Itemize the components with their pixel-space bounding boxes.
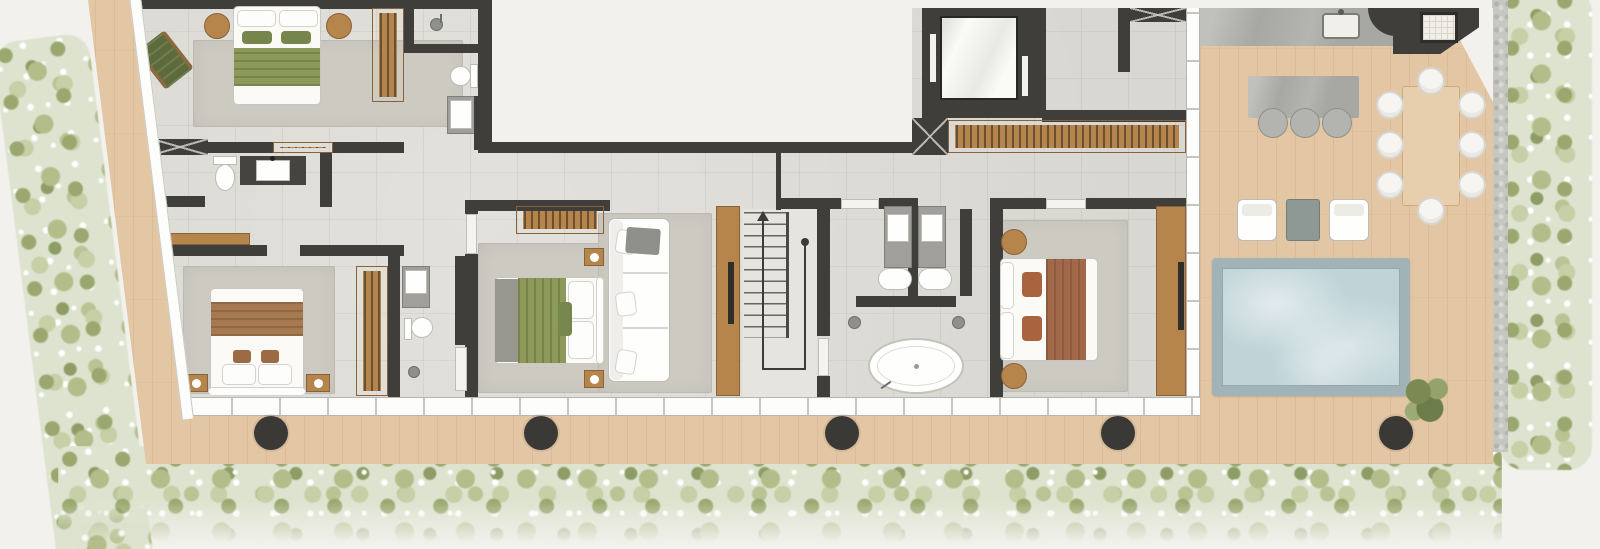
- door-leaf: [455, 347, 467, 391]
- dining-chair: [1458, 91, 1486, 119]
- wall: [333, 142, 404, 153]
- bookshelf: [356, 266, 388, 396]
- bar-stool: [1290, 108, 1320, 138]
- glass-wall: [1186, 8, 1200, 398]
- shower-head: [952, 316, 965, 329]
- hedge-right: [1500, 0, 1592, 470]
- stair-guide-dot: [801, 238, 809, 246]
- bed-pillow: [237, 10, 276, 27]
- bar-stool: [1258, 108, 1288, 138]
- nightstand: [584, 248, 604, 266]
- wall: [960, 209, 972, 296]
- nightstand: [1001, 229, 1027, 255]
- bed-cushion: [1022, 272, 1042, 297]
- nightstand-knob: [590, 253, 599, 262]
- bed-cushion: [1022, 316, 1042, 341]
- nightstand: [306, 374, 330, 392]
- wardrobe: [372, 8, 404, 102]
- lounge-side-table: [1286, 199, 1320, 241]
- stair-treads: [744, 212, 786, 338]
- nightstand-knob: [314, 379, 323, 388]
- deck-column: [825, 416, 859, 450]
- closet-shelf: [516, 206, 604, 234]
- wall-shelf: [273, 142, 333, 153]
- bar-stool: [1322, 108, 1352, 138]
- tv-screen: [1178, 262, 1184, 330]
- sofa-seam: [623, 327, 668, 329]
- window-band: [183, 397, 1200, 416]
- toilet-bowl: [215, 164, 235, 191]
- wall: [388, 256, 400, 397]
- kitchen-sink: [1322, 13, 1360, 39]
- nightstand: [584, 370, 604, 388]
- stair-guide-line: [762, 368, 806, 370]
- shower-head: [408, 366, 420, 378]
- shower-arm: [440, 14, 442, 23]
- dining-chair: [1458, 171, 1486, 199]
- toilet-bowl: [450, 66, 471, 86]
- sofa-pillow: [615, 291, 638, 317]
- dining-chair: [1417, 197, 1445, 225]
- plunge-pool: [1212, 258, 1410, 396]
- dining-chair: [1376, 91, 1404, 119]
- vanity-sink: [887, 214, 909, 242]
- stair-up-arrow: [757, 211, 769, 221]
- vanity-sink: [450, 100, 472, 129]
- bed-cushion: [233, 350, 251, 363]
- door-leaf: [818, 338, 829, 376]
- duct-shaft-x: [912, 118, 948, 155]
- bed-pillow: [258, 364, 292, 385]
- nightstand: [204, 13, 230, 39]
- dining-chair: [1417, 67, 1445, 95]
- wall: [320, 153, 332, 207]
- wall: [404, 44, 480, 53]
- bed-pillow: [1000, 312, 1014, 359]
- bed-pillow: [1000, 262, 1014, 309]
- wall: [856, 296, 956, 307]
- bed-blanket: [234, 48, 320, 86]
- lounge-chair: [1237, 199, 1277, 241]
- stair-guide-line: [762, 220, 764, 368]
- door-leaf: [466, 214, 477, 254]
- nightstand: [1001, 363, 1027, 389]
- bed-headboard: [208, 387, 306, 396]
- door-leaf: [1046, 199, 1086, 209]
- bed-throw: [495, 279, 519, 362]
- gravel-strip: [1492, 0, 1508, 452]
- bed-cushion: [242, 31, 272, 44]
- wall: [1034, 8, 1046, 118]
- lounge-chair-backrest: [1242, 204, 1272, 216]
- dining-chair: [1458, 131, 1486, 159]
- bed-blanket: [211, 302, 303, 336]
- elevator-door: [1022, 56, 1028, 96]
- wall: [817, 209, 830, 336]
- sofa-pillow: [614, 348, 638, 375]
- dining-table: [1402, 86, 1460, 206]
- deck-column: [1379, 416, 1413, 450]
- door-leaf: [841, 199, 879, 209]
- bathroom-closet: [474, 96, 490, 150]
- wall: [478, 142, 912, 153]
- kitchen-faucet: [1338, 9, 1344, 15]
- dining-chair: [1376, 131, 1404, 159]
- duct-shaft-x: [1130, 8, 1186, 22]
- wall: [465, 202, 478, 214]
- dining-chair: [1376, 171, 1404, 199]
- wall: [1118, 8, 1130, 72]
- sofa-seam: [623, 272, 668, 274]
- tv-screen: [728, 262, 734, 324]
- lounge-chair-backrest: [1334, 204, 1364, 216]
- wall-console: [168, 233, 250, 245]
- bed-pillow: [222, 364, 256, 385]
- cabinet-front: [405, 270, 427, 294]
- pool-water: [1222, 268, 1400, 386]
- bed-blanket: [1046, 259, 1086, 360]
- toilet-bowl: [411, 317, 433, 338]
- wall: [990, 198, 1046, 209]
- deck-column: [254, 416, 288, 450]
- wc-sink: [256, 160, 290, 181]
- deck-column: [524, 416, 558, 450]
- bathtub-drain: [914, 364, 919, 369]
- vent-grille: [1420, 12, 1458, 43]
- bed-pillow: [279, 10, 318, 27]
- walk-in-closet-rail: [948, 120, 1186, 153]
- shower-head: [848, 316, 861, 329]
- nightstand: [326, 13, 352, 39]
- bed-cushion: [281, 31, 311, 44]
- vanity-sink: [921, 214, 943, 242]
- toilet-tank: [470, 64, 478, 88]
- elevator-cab: [940, 16, 1018, 100]
- nightstand-knob: [590, 375, 599, 384]
- deck-column: [1101, 416, 1135, 450]
- sofa-throw: [625, 227, 661, 255]
- lounge-chair: [1329, 199, 1369, 241]
- nightstand-knob: [192, 379, 201, 388]
- stair-stringer: [786, 212, 789, 338]
- wall: [776, 153, 781, 210]
- stair-guide-line: [804, 242, 806, 368]
- bed-cushion: [558, 302, 572, 336]
- bed-headboard: [596, 277, 604, 364]
- toilet: [878, 268, 912, 290]
- floor-plan-canvas: [0, 0, 1600, 549]
- bed-cushion: [261, 350, 279, 363]
- bidet: [918, 268, 952, 290]
- wall: [781, 198, 841, 209]
- wc-faucet: [270, 156, 275, 161]
- elevator-rail: [930, 34, 936, 82]
- wall: [300, 245, 404, 256]
